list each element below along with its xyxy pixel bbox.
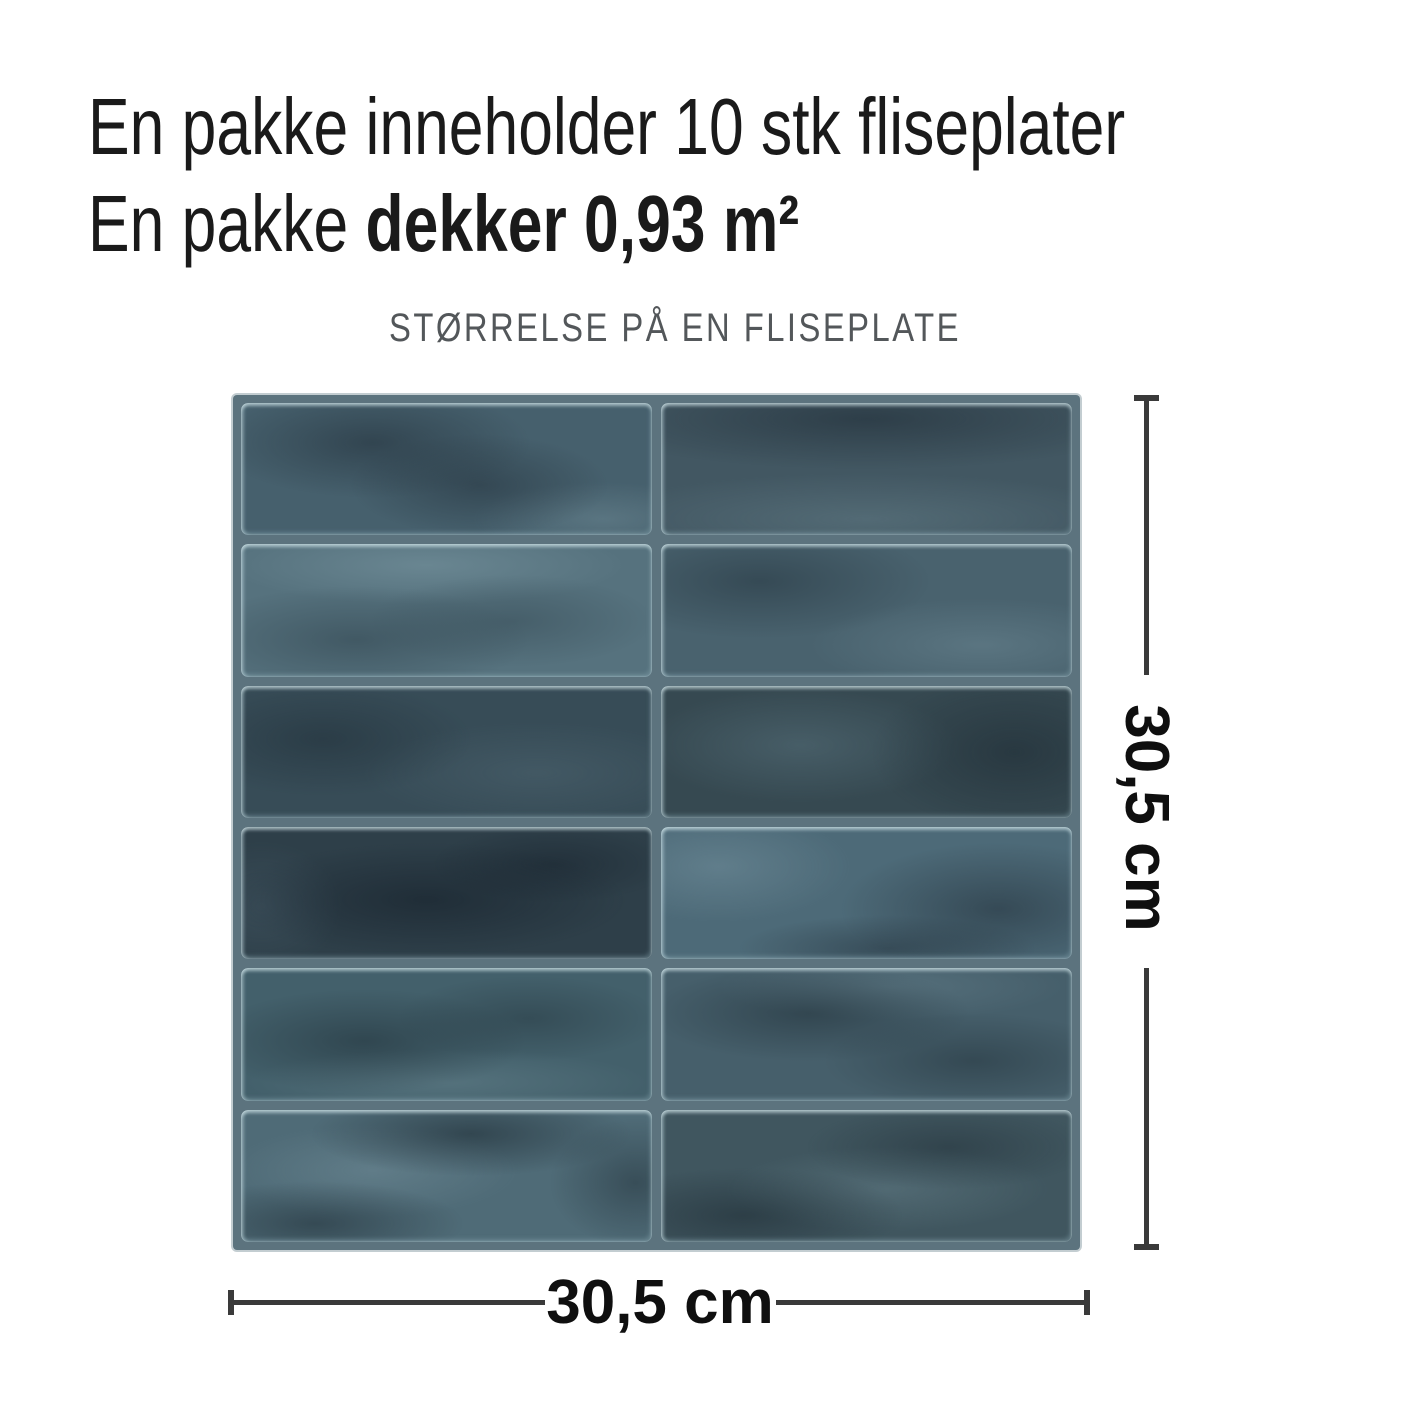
vertical-dim-segment-bottom bbox=[1144, 968, 1149, 1248]
tile bbox=[661, 686, 1072, 818]
heading-line2-bold: dekker 0,93 m² bbox=[366, 179, 800, 268]
heading: En pakke inneholder 10 stk fliseplater E… bbox=[88, 78, 1125, 272]
horizontal-dim-right-cap bbox=[1084, 1290, 1090, 1315]
tile bbox=[241, 544, 652, 676]
tile bbox=[661, 1110, 1072, 1242]
heading-line2-regular: En pakke bbox=[88, 179, 366, 268]
tile bbox=[241, 968, 652, 1100]
page-background: En pakke inneholder 10 stk fliseplater E… bbox=[0, 0, 1406, 1406]
tile bbox=[661, 403, 1072, 535]
height-dimension-label: 30,5 cm bbox=[1115, 704, 1177, 932]
tile-panel bbox=[233, 395, 1080, 1250]
tile bbox=[241, 1110, 652, 1242]
tile bbox=[241, 686, 652, 818]
width-dimension-label: 30,5 cm bbox=[546, 1272, 774, 1334]
tile bbox=[241, 827, 652, 959]
tile bbox=[661, 544, 1072, 676]
horizontal-dim-segment-right bbox=[776, 1300, 1087, 1305]
tile bbox=[241, 403, 652, 535]
vertical-dim-bottom-cap bbox=[1134, 1244, 1159, 1250]
heading-line2: En pakke dekker 0,93 m² bbox=[88, 175, 1125, 272]
tile bbox=[661, 968, 1072, 1100]
heading-line1: En pakke inneholder 10 stk fliseplater bbox=[88, 78, 1125, 175]
subtitle: STØRRELSE PÅ EN FLISEPLATE bbox=[122, 306, 1229, 350]
vertical-dim-segment-top bbox=[1144, 395, 1149, 675]
horizontal-dim-segment-left bbox=[228, 1300, 545, 1305]
tile bbox=[661, 827, 1072, 959]
